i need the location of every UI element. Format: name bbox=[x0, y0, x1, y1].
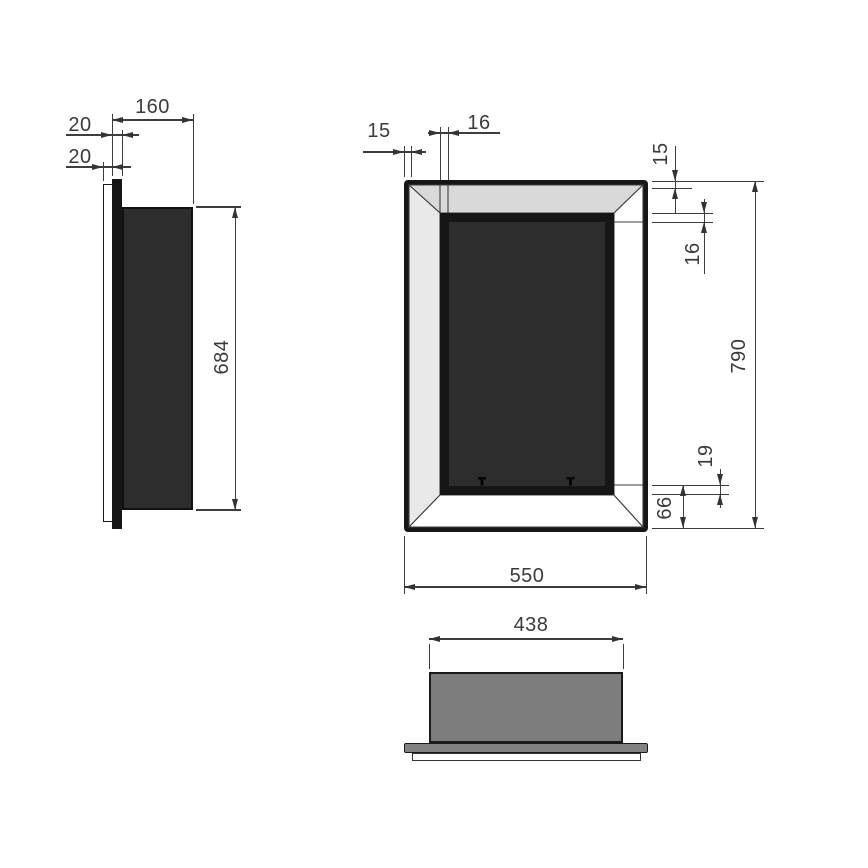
dim-label-front-width: 550 bbox=[497, 566, 557, 586]
dimension-line bbox=[112, 119, 193, 120]
arrowhead bbox=[672, 188, 678, 199]
arrowhead bbox=[717, 474, 723, 485]
bevel-bottom bbox=[409, 495, 643, 527]
dim-label-front-frame-top: 15 bbox=[651, 124, 671, 184]
arrowhead bbox=[635, 584, 646, 590]
dim-label-front-bottom-band: 66 bbox=[655, 478, 675, 538]
extension-line bbox=[646, 536, 647, 594]
dim-label-side-flange: 20 bbox=[50, 115, 110, 135]
side-view-body bbox=[122, 207, 193, 510]
side-view-frame-flange bbox=[112, 179, 122, 529]
arrowhead bbox=[182, 117, 193, 123]
dim-label-front-height: 790 bbox=[729, 326, 749, 386]
arrowhead bbox=[122, 132, 133, 138]
extension-line bbox=[404, 146, 405, 177]
arrowhead bbox=[393, 149, 404, 155]
dimension-line bbox=[429, 638, 623, 639]
technical-drawing-canvas: 160 20 20 684 15 16 15 16 790 19 66 550 bbox=[0, 0, 868, 868]
arrowhead bbox=[429, 130, 440, 136]
arrowhead bbox=[232, 499, 238, 510]
arrowhead bbox=[752, 181, 758, 192]
bottom-view-mounting-plate bbox=[404, 743, 648, 753]
extension-line bbox=[429, 644, 430, 669]
dim-label-side-plate: 20 bbox=[50, 147, 110, 167]
arrowhead bbox=[701, 202, 707, 213]
dim-label-bottom-width: 438 bbox=[501, 615, 561, 635]
arrowhead bbox=[232, 207, 238, 218]
dim-label-front-lip-side: 16 bbox=[449, 113, 509, 133]
dimension-line bbox=[755, 181, 756, 528]
dim-label-side-height: 684 bbox=[212, 327, 232, 387]
dim-label-front-frame-side: 15 bbox=[349, 121, 409, 141]
arrowhead bbox=[404, 584, 415, 590]
extension-line bbox=[623, 644, 624, 669]
arrowhead bbox=[112, 164, 123, 170]
bevel-top bbox=[409, 185, 643, 213]
arrowhead bbox=[411, 149, 422, 155]
arrowhead bbox=[112, 117, 123, 123]
arrowhead bbox=[672, 170, 678, 181]
extension-line bbox=[440, 127, 441, 180]
arrowhead bbox=[612, 636, 623, 642]
dim-label-front-lip-top: 16 bbox=[683, 224, 703, 284]
firebox-interior bbox=[449, 222, 605, 486]
dim-label-side-depth: 160 bbox=[123, 97, 183, 117]
arrowhead bbox=[680, 485, 686, 496]
dimension-line bbox=[235, 207, 236, 510]
bottom-view-front-panel bbox=[412, 753, 641, 761]
arrowhead bbox=[717, 494, 723, 505]
extension-line bbox=[193, 114, 194, 204]
bottom-view-body bbox=[429, 672, 623, 743]
arrowhead bbox=[680, 517, 686, 528]
bevel-right bbox=[614, 185, 643, 527]
dim-label-front-lip-bottom: 19 bbox=[696, 426, 716, 486]
front-view-graphic bbox=[404, 180, 648, 532]
bevel-left bbox=[409, 185, 440, 527]
arrowhead bbox=[752, 517, 758, 528]
arrowhead bbox=[429, 636, 440, 642]
